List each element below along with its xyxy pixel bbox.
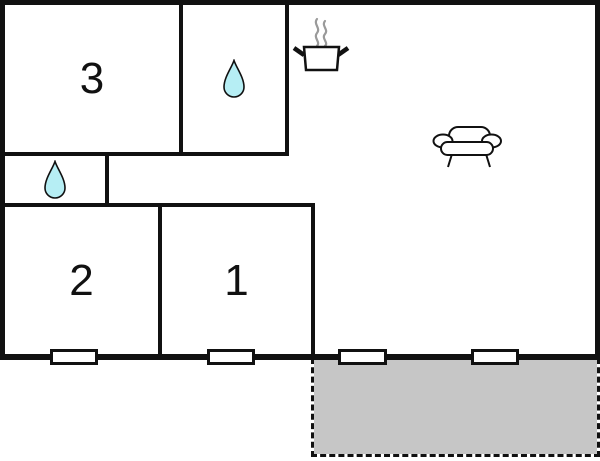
wall-wc-right bbox=[105, 152, 109, 207]
room-1: 1 bbox=[162, 207, 311, 354]
wc bbox=[5, 156, 105, 203]
wall-bathroom-right bbox=[285, 5, 289, 155]
terrace-area bbox=[311, 358, 600, 457]
window bbox=[338, 349, 387, 365]
window bbox=[471, 349, 519, 365]
room-2: 2 bbox=[5, 207, 158, 354]
wall-right bbox=[595, 0, 600, 360]
room-3-label: 3 bbox=[80, 57, 104, 101]
room-2-label: 2 bbox=[69, 259, 93, 303]
water-drop-icon bbox=[43, 160, 67, 200]
water-drop-icon bbox=[222, 59, 246, 99]
steam-icon bbox=[316, 19, 326, 46]
wall-room1-right bbox=[311, 203, 315, 357]
room-3: 3 bbox=[5, 5, 179, 152]
bathroom bbox=[183, 5, 285, 152]
floor-plan: 3 2 1 bbox=[0, 0, 600, 461]
room-1-label: 1 bbox=[224, 259, 248, 303]
cooking-pot-icon bbox=[292, 16, 350, 72]
sofa-icon bbox=[432, 126, 502, 168]
